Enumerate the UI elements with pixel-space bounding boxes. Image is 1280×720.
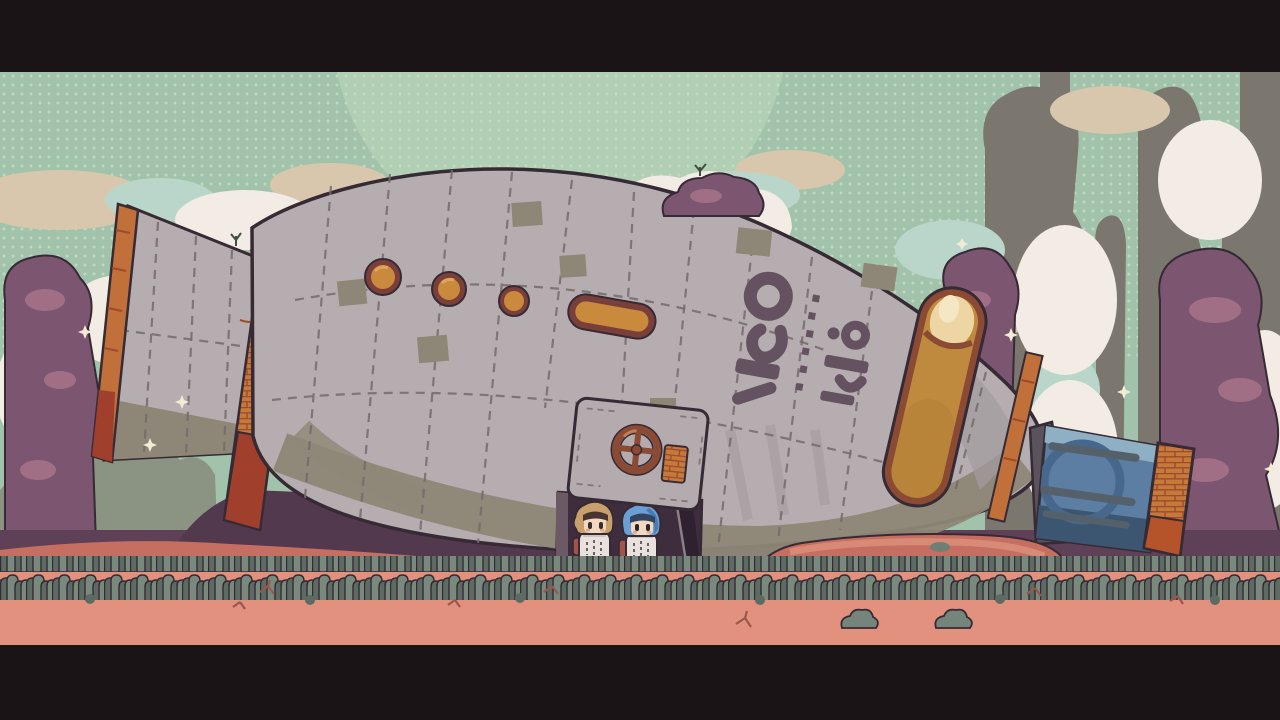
game-viewport[interactable] xyxy=(0,0,1280,720)
game-scene[interactable] xyxy=(0,0,1280,720)
porthole xyxy=(432,272,466,306)
hatch-door[interactable] xyxy=(567,397,709,510)
ground xyxy=(0,556,1280,648)
grass-strip xyxy=(0,556,1280,600)
door-latch xyxy=(661,445,688,483)
letterbox-bottom xyxy=(0,645,1280,720)
porthole xyxy=(499,286,529,316)
letterbox-top xyxy=(0,0,1280,72)
porthole xyxy=(365,259,401,295)
